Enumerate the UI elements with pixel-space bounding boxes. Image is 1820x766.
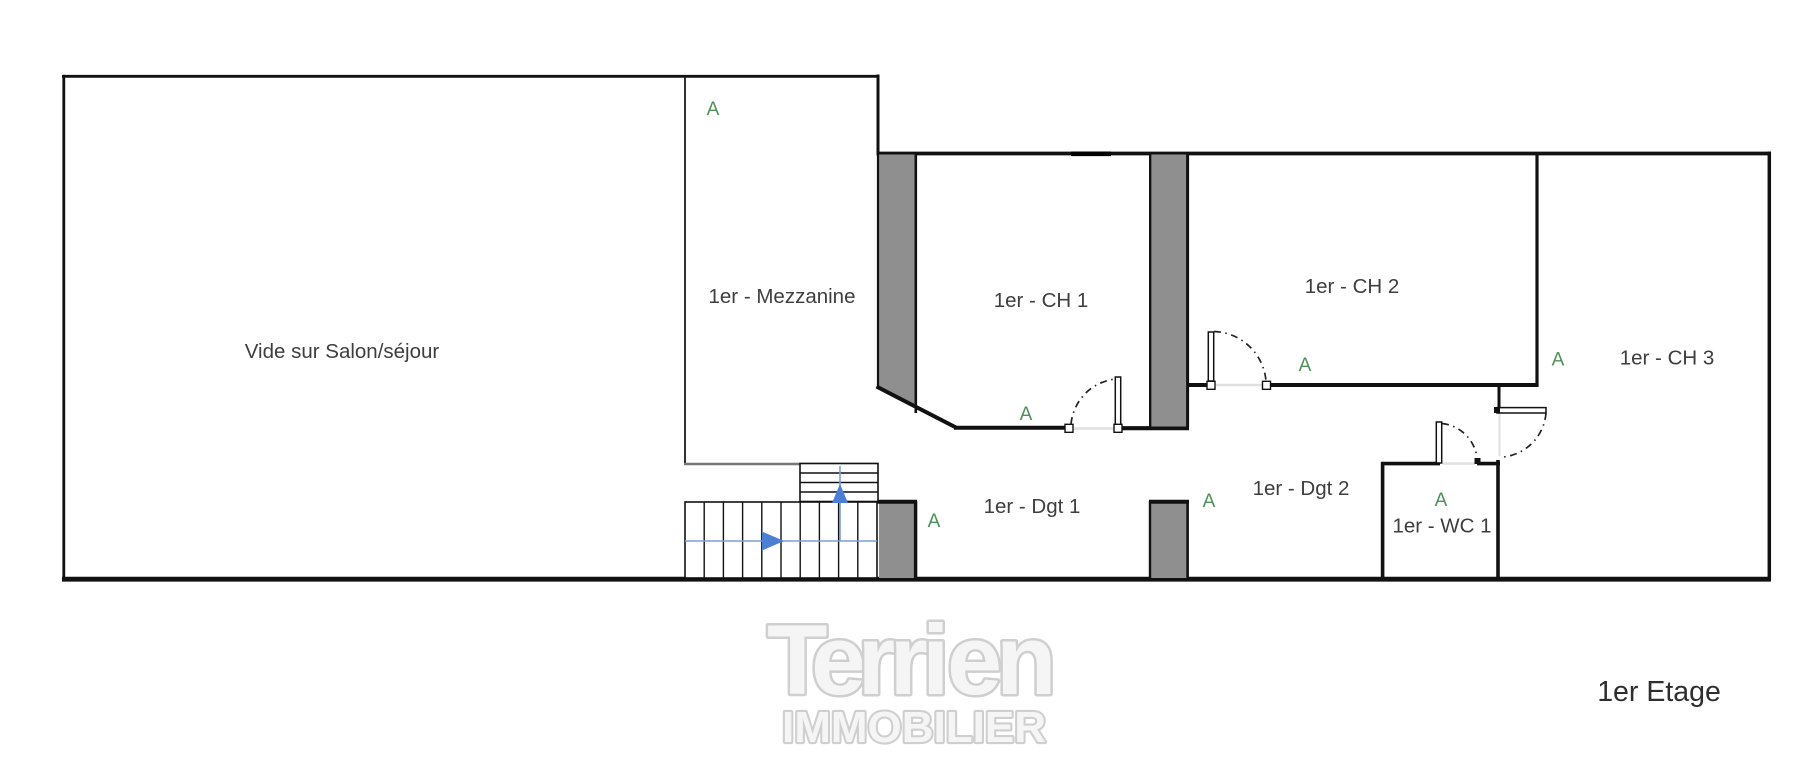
svg-text:IMMOBILIER: IMMOBILIER — [782, 703, 1046, 752]
svg-text:A: A — [1552, 350, 1565, 371]
svg-text:1er - CH 2: 1er - CH 2 — [1305, 275, 1400, 298]
svg-text:1er - WC 1: 1er - WC 1 — [1392, 515, 1491, 538]
svg-text:A: A — [707, 99, 720, 120]
svg-text:1er - Dgt 1: 1er - Dgt 1 — [984, 495, 1081, 518]
svg-text:A: A — [1020, 404, 1033, 425]
svg-text:1er - CH 1: 1er - CH 1 — [994, 289, 1089, 312]
svg-text:1er Etage: 1er Etage — [1597, 676, 1721, 708]
svg-text:A: A — [1299, 355, 1312, 376]
svg-text:1er - Dgt 2: 1er - Dgt 2 — [1253, 477, 1350, 500]
svg-text:Vide sur Salon/séjour: Vide sur Salon/séjour — [245, 340, 440, 363]
svg-text:A: A — [928, 511, 941, 532]
svg-text:1er - Mezzanine: 1er - Mezzanine — [709, 285, 856, 308]
svg-text:A: A — [1435, 490, 1448, 511]
svg-text:1er - CH 3: 1er - CH 3 — [1620, 347, 1715, 370]
svg-text:Terrien: Terrien — [767, 604, 1056, 715]
svg-text:A: A — [1203, 491, 1216, 512]
